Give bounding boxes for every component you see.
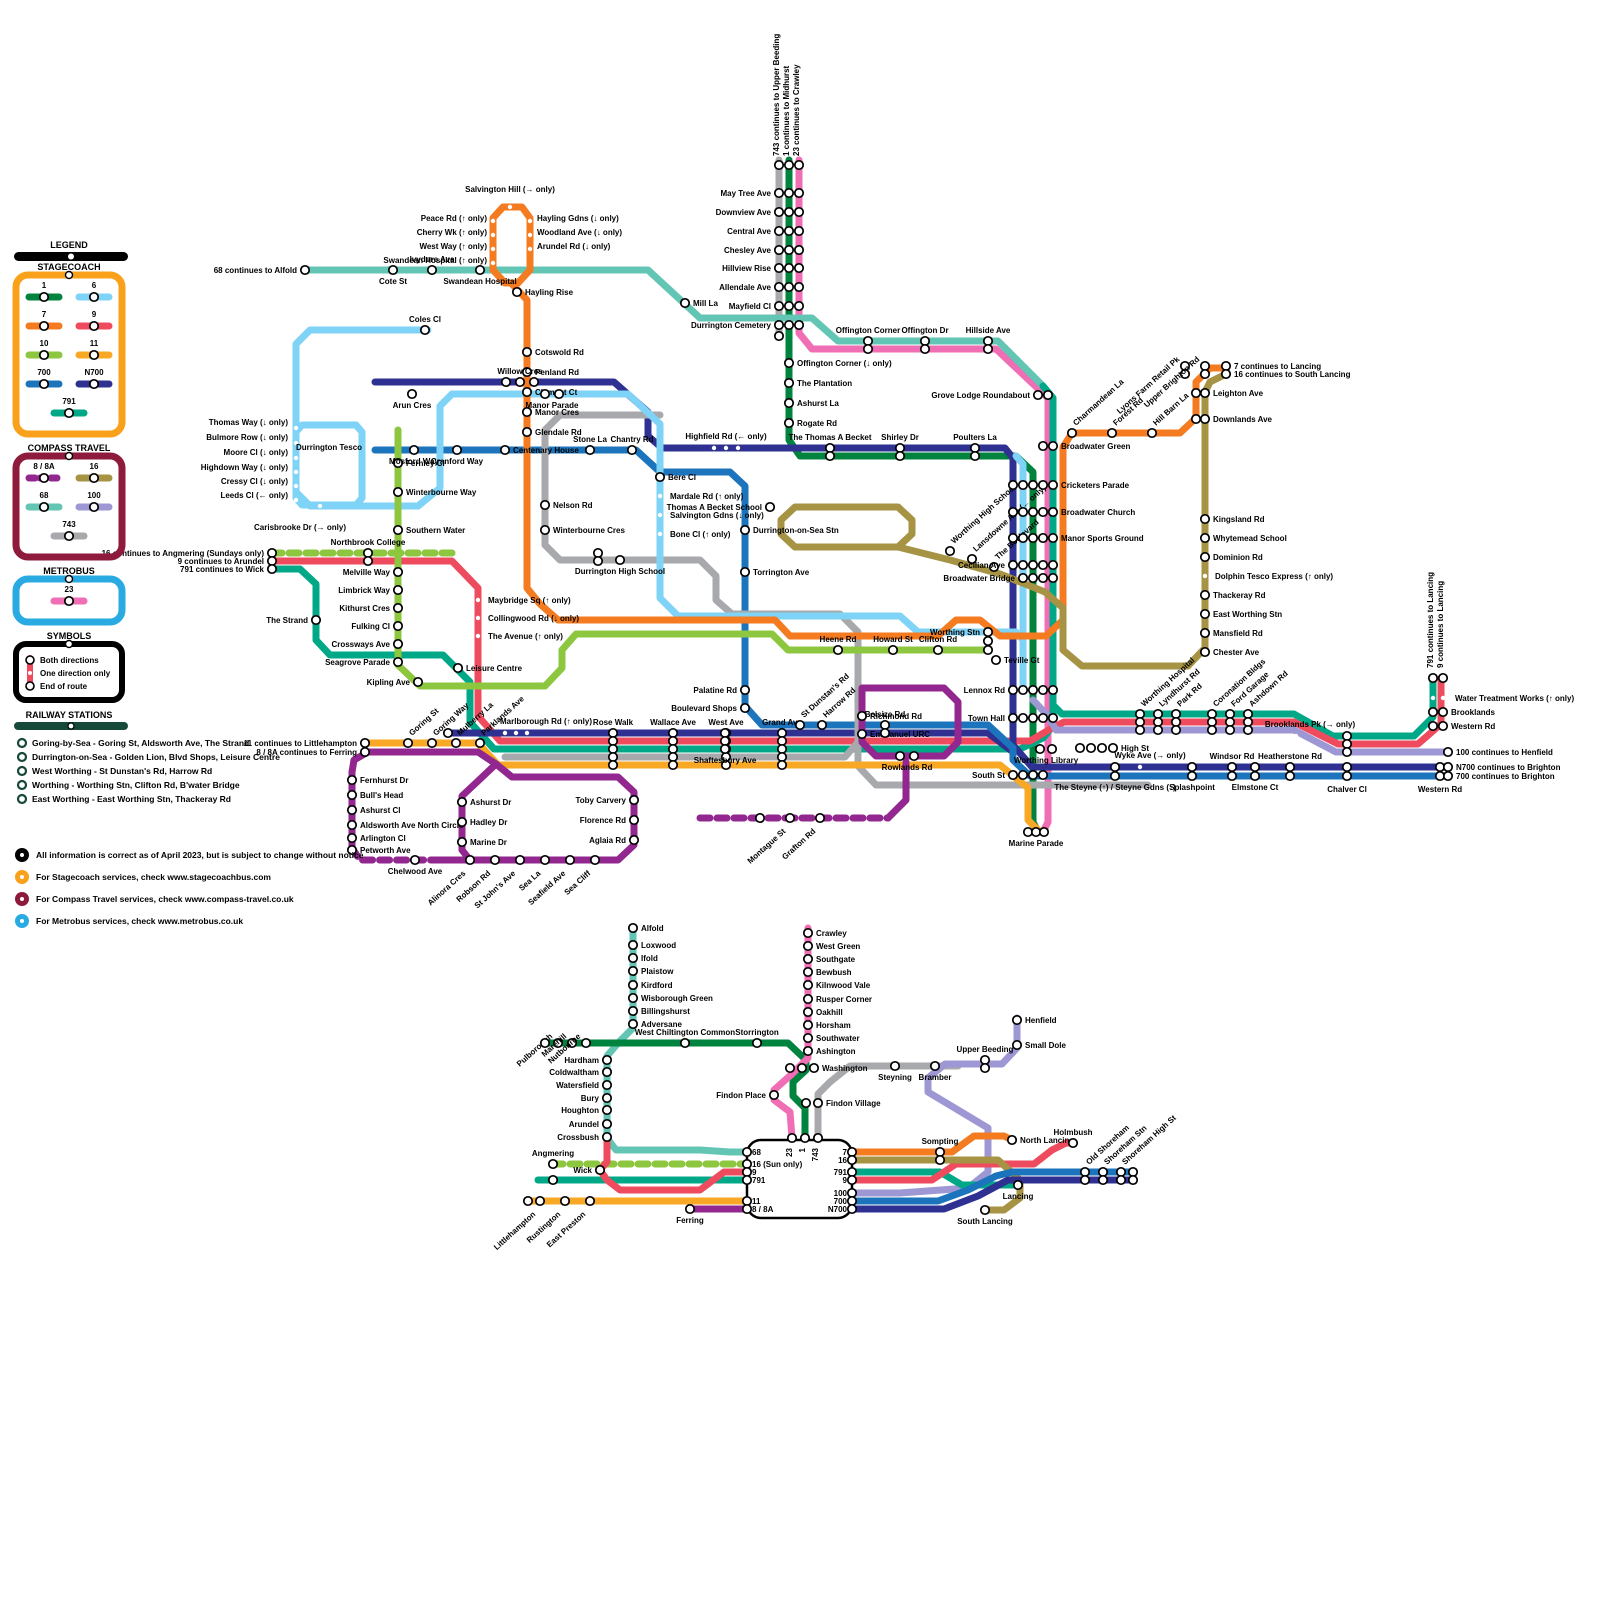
station-label: Holmbush: [1053, 1128, 1092, 1137]
station-label: Teville Gt: [1004, 656, 1040, 665]
station-label: Stone La: [573, 435, 607, 444]
station-label: 68 continues to Alfold: [214, 266, 297, 275]
station-dot: [931, 1062, 939, 1070]
station-dot: [1039, 574, 1047, 582]
station-label: Aldsworth Ave North Circle: [360, 821, 464, 830]
station-dot: [814, 1099, 822, 1107]
station-dot: [826, 444, 834, 452]
station-dot: [1201, 648, 1209, 656]
station-dot: [826, 452, 834, 460]
map-note: Bulmore Row (↓ only): [206, 433, 288, 442]
station-label: Bere Cl: [668, 473, 696, 482]
legend-frame-dot: [66, 453, 73, 460]
map-note: Moore Cl (↓ only): [224, 448, 289, 457]
station-dot: [681, 299, 689, 307]
station-dot: [816, 814, 824, 822]
station-dot: [1286, 772, 1294, 780]
station-dot: [428, 266, 436, 274]
station-dot: [1444, 772, 1452, 780]
station-label: Central Ave: [727, 227, 771, 236]
one-way-dot: [491, 219, 495, 223]
station-dot: [743, 1197, 751, 1205]
station-dot: [1049, 714, 1057, 722]
station-dot: [848, 1168, 856, 1176]
station-dot: [766, 503, 774, 511]
station-label: Broadwater Green: [1061, 442, 1130, 451]
station-dot: [476, 739, 484, 747]
footnote-bullet-dot: [20, 897, 24, 901]
footnote-text: For Stagecoach services, check www.stage…: [36, 872, 271, 882]
station-dot: [1228, 772, 1236, 780]
station-dot: [775, 189, 783, 197]
station-dot: [795, 302, 803, 310]
station-dot: [795, 208, 803, 216]
station-dot: [1076, 744, 1084, 752]
station-label: Small Dole: [1025, 1041, 1066, 1050]
station-dot: [1098, 744, 1106, 752]
station-label: Offington Corner (↓ only): [797, 359, 892, 368]
legend-route-number: 1: [42, 281, 47, 290]
station-dot: [981, 1056, 989, 1064]
station-label: Fulking Cl: [351, 622, 390, 631]
map-note: Leeds Cl (← only): [220, 491, 288, 500]
station-dot: [630, 816, 638, 824]
station-dot: [921, 337, 929, 345]
map-note: Woodland Ave (↓ only): [537, 228, 622, 237]
station-dot: [795, 227, 803, 235]
station-label: Torrington Ave: [753, 568, 810, 577]
one-way-dot: [1431, 696, 1435, 700]
station-dot: [795, 161, 803, 169]
map-note: 68: [752, 1148, 761, 1157]
station-dot: [394, 622, 402, 630]
station-dot: [804, 955, 812, 963]
station-dot: [586, 1197, 594, 1205]
station-dot: [1069, 1139, 1077, 1147]
station-label: Cote St: [379, 277, 407, 286]
station-label: Manor Sports Ground: [1061, 534, 1144, 543]
station-dot: [1019, 561, 1027, 569]
legend-chip-dot: [40, 474, 48, 482]
station-dot: [1439, 722, 1447, 730]
station-dot: [981, 1064, 989, 1072]
station-dot: [1154, 718, 1162, 726]
station-dot: [936, 1148, 944, 1156]
station-label: May Tree Ave: [720, 189, 771, 198]
station-dot: [549, 1160, 557, 1168]
station-dot: [1039, 442, 1047, 450]
station-dot: [770, 1091, 778, 1099]
station-dot: [848, 1176, 856, 1184]
station-dot: [1068, 429, 1076, 437]
station-dot: [778, 745, 786, 753]
station-dot: [1226, 710, 1234, 718]
station-dot: [1049, 574, 1057, 582]
station-dot: [848, 1148, 856, 1156]
legend-route-number: 700: [37, 368, 51, 377]
map-note: Western Rd: [1418, 785, 1462, 794]
map-note: 1 continues to Midhurst: [782, 65, 791, 156]
station-label: Kirdford: [641, 981, 673, 990]
station-dot: [889, 646, 897, 654]
map-note: N700: [828, 1205, 848, 1214]
footnote-text: For Compass Travel services, check www.c…: [36, 894, 294, 904]
map-note: Hayling Gdns (↓ only): [537, 214, 619, 223]
station-label: Henfield: [1025, 1016, 1057, 1025]
station-dot: [466, 856, 474, 864]
station-dot: [421, 326, 429, 334]
station-dot: [541, 501, 549, 509]
station-label: Thackeray Rd: [1213, 591, 1266, 600]
station-dot: [1208, 726, 1216, 734]
station-label: Mill La: [693, 299, 718, 308]
station-dot: [721, 729, 729, 737]
station-dot: [1222, 362, 1230, 370]
legend-route-number: 9: [92, 310, 97, 319]
station-dot: [775, 208, 783, 216]
station-dot: [516, 856, 524, 864]
station-dot: [1029, 771, 1037, 779]
station-label: Bramber: [919, 1073, 952, 1082]
station-dot: [394, 526, 402, 534]
station-label: 100 continues to Henfield: [1456, 748, 1553, 757]
station-dot: [1039, 771, 1047, 779]
station-dot: [1244, 726, 1252, 734]
station-dot: [411, 856, 419, 864]
station-dot: [1439, 708, 1447, 716]
station-dot: [1188, 772, 1196, 780]
station-dot: [971, 444, 979, 452]
station-label: Cecilian Ave: [958, 561, 1006, 570]
map-note: 8 / 8A: [752, 1205, 774, 1214]
station-dot: [1208, 710, 1216, 718]
station-dot: [523, 428, 531, 436]
station-dot: [984, 646, 992, 654]
station-label: Limbrick Way: [338, 586, 390, 595]
station-dot: [775, 283, 783, 291]
station-label: Winterbourne Way: [406, 488, 477, 497]
station-label: Kilnwood Vale: [816, 981, 871, 990]
station-dot: [458, 818, 466, 826]
station-dot: [348, 776, 356, 784]
station-dot: [981, 1206, 989, 1214]
station-label: The Thomas A Becket: [789, 433, 872, 442]
station-dot: [656, 473, 664, 481]
station-dot: [778, 753, 786, 761]
station-dot: [629, 994, 637, 1002]
legend-frame-dot: [66, 641, 73, 648]
station-dot: [795, 283, 803, 291]
one-way-dot: [528, 219, 532, 223]
station-label: Wallace Ave: [650, 718, 696, 727]
station-dot: [971, 452, 979, 460]
station-label: The Steyne (↑) / Steyne Gdns (↓): [1054, 783, 1176, 792]
station-dot: [1019, 534, 1027, 542]
station-dot: [629, 1020, 637, 1028]
railway-station-dot: [18, 781, 26, 789]
station-dot: [891, 1062, 899, 1070]
one-way-dot: [294, 498, 298, 502]
station-dot: [609, 729, 617, 737]
station-dot: [1226, 718, 1234, 726]
station-dot: [454, 664, 462, 672]
station-dot: [785, 379, 793, 387]
station-dot: [603, 1106, 611, 1114]
map-note: Cherry Wk (↑ only): [417, 228, 488, 237]
one-way-dot: [503, 731, 507, 735]
station-label: Centenary House: [513, 446, 579, 455]
station-dot: [775, 302, 783, 310]
legend-route-number: 8 / 8A: [33, 462, 55, 471]
one-way-dot: [491, 247, 495, 251]
station-dot: [268, 565, 276, 573]
legend-route-number: N700: [84, 368, 104, 377]
railway-station-label: Goring-by-Sea - Goring St, Aldsworth Ave…: [32, 738, 249, 748]
station-label: Crossways Ave: [331, 640, 390, 649]
station-dot: [1117, 1176, 1125, 1184]
station-dot: [394, 604, 402, 612]
legend-chip-dot: [40, 293, 48, 301]
station-dot: [921, 345, 929, 353]
station-dot: [984, 637, 992, 645]
station-dot: [501, 446, 509, 454]
station-dot: [1192, 415, 1200, 423]
station-dot: [743, 1160, 751, 1168]
map-note: Chalver Cl: [1327, 785, 1367, 794]
legend-bar-dot: [68, 254, 74, 260]
station-dot: [848, 1197, 856, 1205]
bus-network-map: May Tree AveDownview AveCentral AveChesl…: [0, 0, 1600, 1600]
station-dot: [404, 739, 412, 747]
station-dot: [804, 1008, 812, 1016]
station-label: Leighton Ave: [1213, 389, 1264, 398]
station-dot: [541, 856, 549, 864]
legend-route-number: 11: [90, 339, 99, 348]
station-dot: [778, 737, 786, 745]
station-dot: [1343, 763, 1351, 771]
legend-chip-dot: [65, 532, 73, 540]
railway-bar-dot: [68, 723, 74, 729]
station-label: Swandean Hospital: [443, 277, 516, 286]
symbol-label: End of route: [40, 682, 88, 691]
station-label: Heene Rd: [820, 635, 857, 644]
station-dot: [536, 1197, 544, 1205]
station-label: The Plantation: [797, 379, 852, 388]
one-way-dot: [318, 504, 322, 508]
station-dot: [1444, 763, 1452, 771]
station-dot: [555, 390, 563, 398]
legend-chip-dot: [90, 351, 98, 359]
station-label: Rose Walk: [593, 718, 634, 727]
station-label: Bewbush: [816, 968, 852, 977]
map-note: 23 continues to Crawley: [792, 64, 801, 156]
station-label: Plaistow: [641, 967, 674, 976]
station-dot: [804, 1034, 812, 1042]
station-dot: [348, 806, 356, 814]
station-label: Worthing Library: [1014, 756, 1079, 765]
map-note: Marlborough Rd (↑ only): [500, 717, 592, 726]
station-dot: [629, 1007, 637, 1015]
one-way-dot: [525, 731, 529, 735]
station-label: Shaftesbury Ave: [694, 756, 757, 765]
symbol-one-direction: [28, 671, 32, 675]
station-dot: [741, 686, 749, 694]
station-label: North Lancing: [1020, 1136, 1074, 1145]
station-dot: [629, 967, 637, 975]
station-dot: [686, 1205, 694, 1213]
station-dot: [743, 1148, 751, 1156]
station-dot: [1222, 370, 1230, 378]
station-label: Windsor Rd: [1210, 752, 1255, 761]
station-dot: [788, 1134, 796, 1142]
station-label: Rusper Corner: [816, 995, 872, 1004]
one-way-dot: [712, 446, 716, 450]
map-note: Bone Cl (↑ only): [670, 530, 731, 539]
station-label: West Chiltington Common: [635, 1028, 735, 1037]
station-label: Coles Cl: [409, 315, 441, 324]
station-dot: [502, 378, 510, 386]
station-dot: [364, 557, 372, 565]
legend-frame-dot: [66, 272, 73, 279]
station-label: Billingshurst: [641, 1007, 690, 1016]
station-dot: [801, 1134, 809, 1142]
station-dot: [1436, 772, 1444, 780]
one-way-dot: [491, 261, 495, 265]
station-dot: [795, 189, 803, 197]
station-dot: [1439, 674, 1447, 682]
station-dot: [1019, 686, 1027, 694]
station-dot: [476, 266, 484, 274]
legend-frame-dot: [66, 576, 73, 583]
station-dot: [1201, 515, 1209, 523]
one-way-dot: [476, 616, 480, 620]
station-dot: [394, 568, 402, 576]
one-way-dot: [1441, 696, 1445, 700]
station-label: Ashurst Dr: [470, 798, 511, 807]
station-dot: [743, 1176, 751, 1184]
station-dot: [785, 189, 793, 197]
station-dot: [389, 266, 397, 274]
station-label: Watersfield: [556, 1081, 599, 1090]
station-dot: [541, 526, 549, 534]
station-dot: [361, 748, 369, 756]
station-dot: [530, 378, 538, 386]
station-dot: [1286, 763, 1294, 771]
station-dot: [1049, 481, 1057, 489]
station-label: Florence Rd: [580, 816, 626, 825]
station-label: Splashpoint: [1169, 783, 1215, 792]
station-dot: [458, 838, 466, 846]
station-dot: [1029, 714, 1037, 722]
station-dot: [1228, 763, 1236, 771]
station-dot: [1009, 686, 1017, 694]
one-way-dot: [736, 446, 740, 450]
station-label: Crossbush: [557, 1133, 599, 1142]
station-label: Clifton Rd: [919, 635, 957, 644]
station-dot: [775, 227, 783, 235]
station-dot: [946, 547, 954, 555]
station-label: Chesley Ave: [724, 246, 772, 255]
map-note: The Avenue (↑ only): [488, 632, 563, 641]
station-dot: [785, 264, 793, 272]
station-dot: [795, 264, 803, 272]
station-label: West Ave: [708, 718, 744, 727]
station-dot: [1429, 674, 1437, 682]
station-dot: [1024, 828, 1032, 836]
station-label: Upper Beeding: [957, 1045, 1014, 1054]
station-dot: [603, 1120, 611, 1128]
station-dot: [934, 646, 942, 654]
station-dot: [1172, 718, 1180, 726]
map-note: 743: [811, 1147, 820, 1161]
station-dot: [1111, 772, 1119, 780]
station-label: Oakhill: [816, 1008, 843, 1017]
map-note: 1: [798, 1147, 807, 1152]
station-dot: [896, 452, 904, 460]
station-dot: [1009, 508, 1017, 516]
railway-station-dot: [18, 739, 26, 747]
map-note: Maybridge Sq (↑ only): [488, 596, 571, 605]
station-dot: [516, 378, 524, 386]
one-way-dot: [528, 247, 532, 251]
station-dot: [778, 761, 786, 769]
station-dot: [524, 1197, 532, 1205]
one-way-dot: [1294, 734, 1298, 738]
station-dot: [629, 981, 637, 989]
station-dot: [775, 332, 783, 340]
station-dot: [669, 753, 677, 761]
station-dot: [1044, 391, 1052, 399]
station-label: Heatherstone Rd: [1258, 752, 1322, 761]
station-label: Durrington Cemetery: [691, 321, 772, 330]
station-dot: [549, 1176, 557, 1184]
station-label: South St: [972, 771, 1005, 780]
station-label: East Worthing Stn: [1213, 610, 1282, 619]
station-dot: [628, 446, 636, 454]
station-dot: [1019, 574, 1027, 582]
station-dot: [1036, 745, 1044, 753]
legend-chip-dot: [40, 503, 48, 511]
station-dot: [681, 1039, 689, 1047]
station-dot: [984, 628, 992, 636]
station-dot: [785, 399, 793, 407]
railway-station-label: West Worthing - St Dunstan's Rd, Harrow …: [32, 766, 212, 776]
one-way-dot: [476, 634, 480, 638]
map-note: Wyke Ave (→ only): [1114, 751, 1186, 760]
station-label: Houghton: [561, 1106, 599, 1115]
station-dot: [541, 1039, 549, 1047]
station-label: Howard St: [873, 635, 913, 644]
station-dot: [1008, 1136, 1016, 1144]
station-dot: [394, 586, 402, 594]
station-label: Hillside Ave: [966, 326, 1011, 335]
symbol-both-directions: [26, 656, 34, 664]
station-label: 16 continues to South Lancing: [1234, 370, 1351, 379]
station-dot: [1029, 481, 1037, 489]
station-dot: [1429, 708, 1437, 716]
station-dot: [1244, 718, 1252, 726]
map-note: Salvington Hill (→ only): [465, 185, 555, 194]
station-dot: [1009, 771, 1017, 779]
station-dot: [1034, 391, 1042, 399]
station-dot: [1048, 745, 1056, 753]
station-dot: [804, 995, 812, 1003]
station-label: Cotswold Rd: [535, 348, 584, 357]
station-dot: [364, 549, 372, 557]
station-dot: [394, 488, 402, 496]
footnote-bullet-dot: [20, 853, 24, 857]
station-label: Arundel: [569, 1120, 599, 1129]
